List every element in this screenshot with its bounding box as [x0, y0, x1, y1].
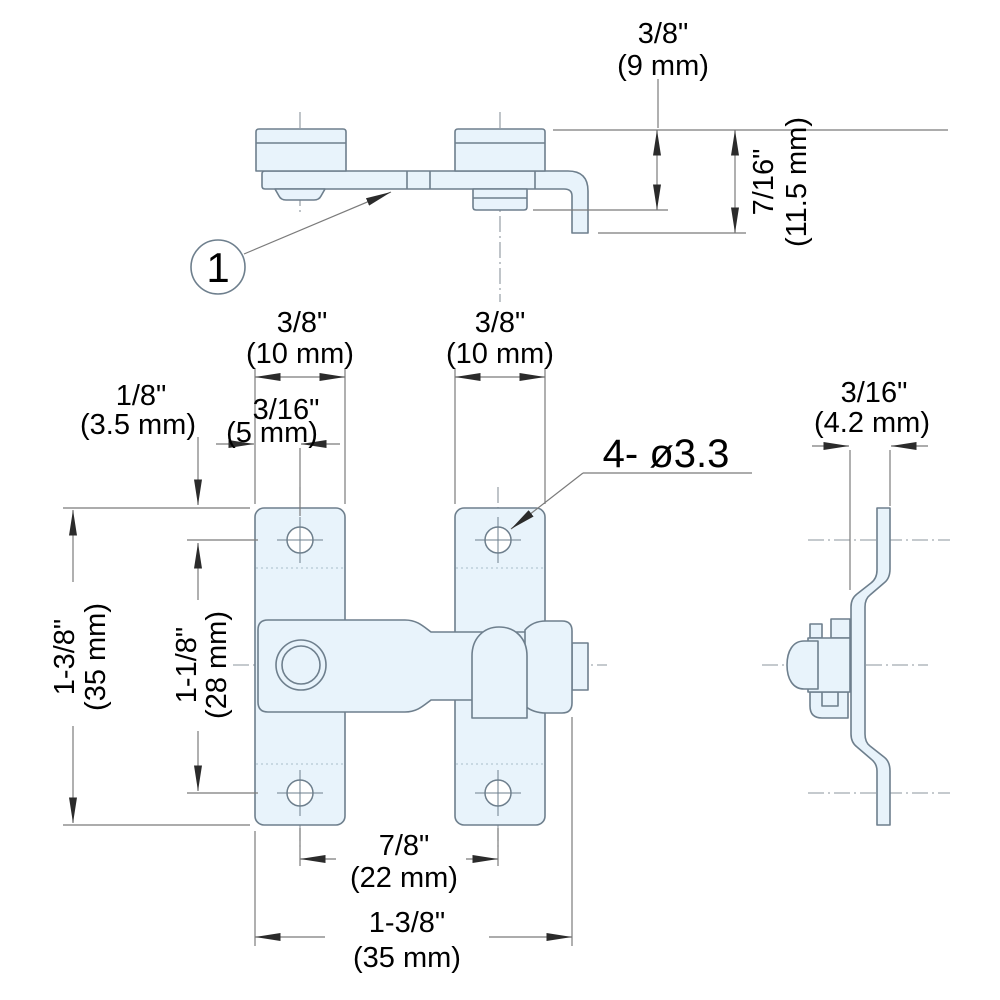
profile-right-knob: [455, 129, 545, 171]
profile-left-knob: [256, 129, 346, 171]
dim-overall-width-inch: 1-3/8": [369, 907, 445, 939]
latch-technical-drawing: 1 3/8" (9 mm) 7/16" (11.5 mm): [0, 0, 1000, 1000]
dim-hole-pitch-vert-inch: 1-1/8": [171, 627, 203, 703]
catch-end-piece: [525, 621, 572, 713]
dim-hole-pitch-vert-mm: (28 mm): [201, 611, 233, 719]
dim-knob-height-mm: (9 mm): [617, 50, 709, 82]
balloon-leader: [244, 192, 391, 254]
dim-hole-inset-top-mm: (5 mm): [226, 417, 318, 449]
dim-total-depth-mm: (11.5 mm): [781, 117, 813, 247]
latch-knob-front: [472, 627, 527, 718]
dim-hole-inset-side-inch: 1/8": [116, 380, 167, 412]
side-knob-step-top-small: [810, 624, 822, 638]
top-view: 1: [191, 112, 588, 302]
profile-right-nut: [473, 189, 527, 210]
hole-note-leader: [511, 473, 583, 529]
top-view-dimensions: 3/8" (9 mm) 7/16" (11.5 mm): [533, 18, 948, 247]
dim-hole-inset-side-mm: (3.5 mm): [80, 409, 196, 441]
dim-left-plate-width-mm: (10 mm): [246, 338, 354, 370]
dim-side-offset-mm: (4.2 mm): [814, 407, 930, 439]
dim-knob-height-inch: 3/8": [638, 18, 689, 50]
side-knob-head: [787, 641, 818, 689]
dim-left-plate-width-inch: 3/8": [277, 307, 328, 339]
profile-bar: [262, 171, 588, 233]
side-knob-step-top-large: [831, 619, 850, 638]
dim-overall-width-mm: (35 mm): [353, 942, 461, 974]
side-knob-step-bottom: [822, 692, 838, 706]
dim-right-plate-width-mm: (10 mm): [446, 338, 554, 370]
dim-hole-pitch-horiz-mm: (22 mm): [350, 862, 458, 894]
dim-total-depth-inch: 7/16": [748, 149, 780, 216]
balloon-number: 1: [206, 244, 229, 291]
dim-side-offset-inch: 3/16": [841, 377, 908, 409]
front-view: [233, 487, 607, 851]
engineering-drawing-page: 1 3/8" (9 mm) 7/16" (11.5 mm): [0, 0, 1000, 1000]
dim-hole-pitch-horiz-inch: 7/8": [379, 830, 430, 862]
dim-right-plate-width-inch: 3/8": [475, 307, 526, 339]
side-z-bracket-profile: [851, 508, 890, 825]
side-view: [762, 508, 950, 825]
strike-tab: [572, 643, 588, 690]
dim-overall-height-inch: 1-3/8": [49, 619, 81, 695]
side-view-dimensions: 3/16" (4.2 mm): [812, 377, 930, 590]
hole-note-label: 4- ø3.3: [603, 432, 730, 476]
profile-left-flange: [275, 189, 325, 200]
dim-overall-height-mm: (35 mm): [80, 603, 112, 711]
